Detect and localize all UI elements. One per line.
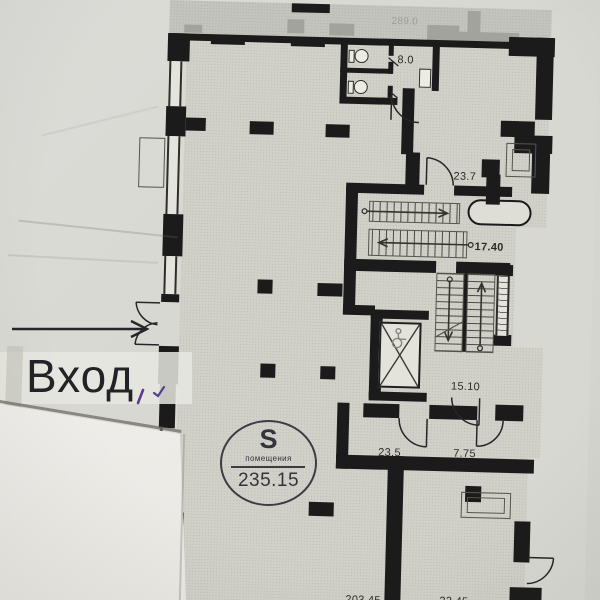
floor-plan-photo: 289.0 8.0 23.7 17.40 15.10 23.5 7.75 203… — [0, 0, 600, 600]
pen-mark — [138, 390, 143, 403]
pen-check-mark — [154, 387, 164, 396]
annotation-overlay — [0, 0, 600, 600]
